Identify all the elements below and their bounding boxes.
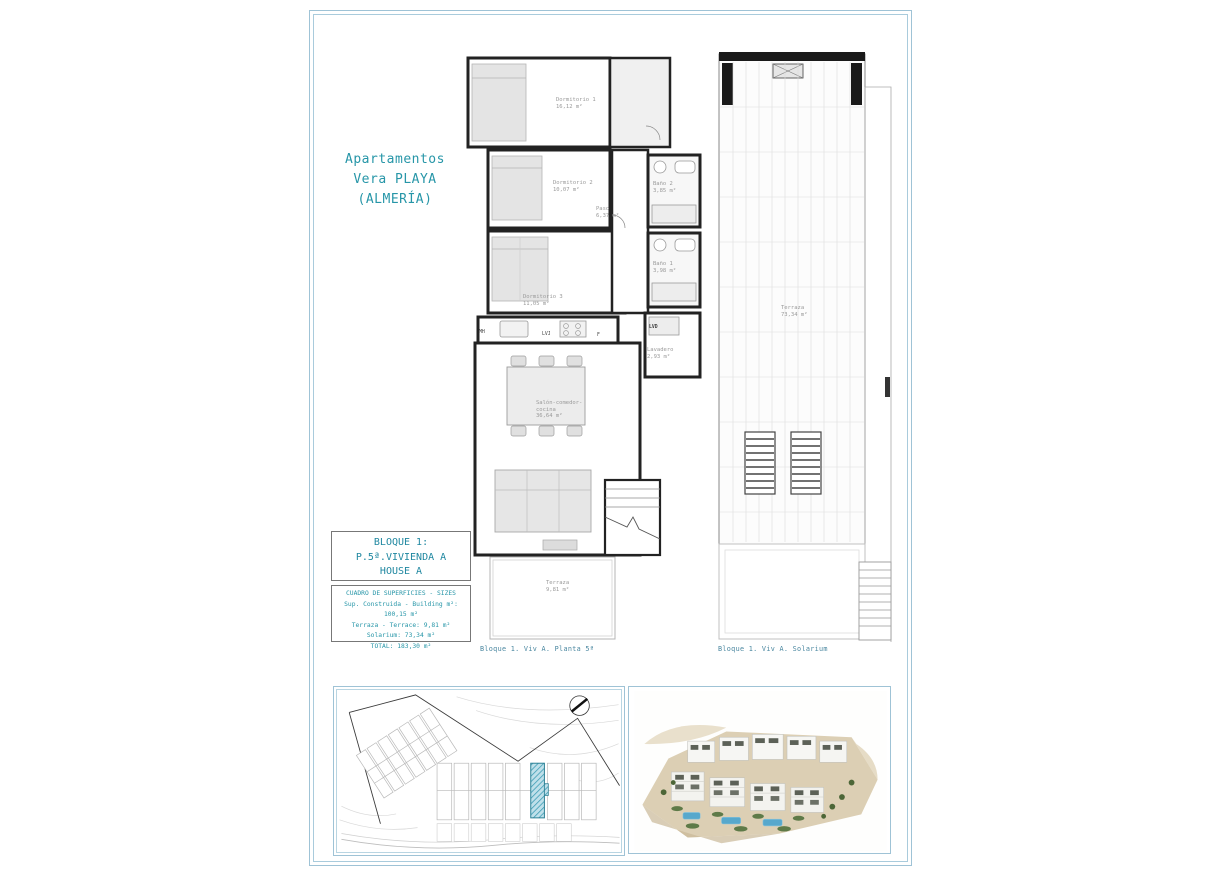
project-title: Apartamentos Vera PLAYA (ALMERÍA) [328,150,462,210]
project-title-line3: (ALMERÍA) [328,190,462,210]
appliance-label-lvd: LVD [649,325,658,330]
sizes-row-building: Sup. Construida - Building m²: 100,15 m² [332,600,470,621]
sizes-row-total: TOTAL: 183,30 m² [332,642,470,653]
side-strip [865,87,891,642]
room-label-salon: Salón-comedor-cocina 36,64 m² [536,400,598,420]
pool-2 [721,817,740,824]
project-title-line2: Vera PLAYA [328,170,462,190]
sizes-table: CUADRO DE SUPERFICIES - SIZES Sup. Const… [331,585,471,642]
solarium-wall-left [722,63,733,105]
room-label-dormitorio1: Dormitorio 1 16,12 m² [556,97,596,110]
bed-1 [472,64,526,141]
caption-solarium: Bloque 1. Viv A. Solarium [718,645,828,653]
block-line1: BLOQUE 1: [332,536,470,551]
room-label-lavadero: Lavadero 2,93 m² [647,347,674,360]
north-arrow-icon [570,696,590,716]
coffee-table [543,540,577,550]
room-label-dormitorio3: Dormitorio 3 11,05 m² [523,294,563,307]
sizes-row-terrace: Terraza - Terrace: 9,81 m² [332,621,470,632]
solarium-drawing [713,42,898,647]
strip-detail [885,377,890,397]
solarium-stairs [859,562,891,640]
pool-1 [683,812,700,819]
chair [511,356,526,366]
shower-2 [652,205,696,223]
sizes-header: CUADRO DE SUPERFICIES - SIZES [332,589,470,600]
pool-3 [763,819,782,826]
chair [539,426,554,436]
site-plan-drawing [338,691,622,853]
room-label-terraza: Terraza 9,81 m² [546,580,569,593]
sink-1 [675,239,695,251]
plan-sheet-page: Apartamentos Vera PLAYA (ALMERÍA) [0,0,1221,877]
block-info-box: BLOQUE 1: P.5ª.VIVIENDA A HOUSE A [331,531,471,581]
terraza-outline [490,557,615,639]
chair [539,356,554,366]
bed-2 [492,156,542,220]
lower-terrace-outline [719,544,865,639]
room-label-solarium-terraza: Terraza 73,34 m² [781,305,808,318]
caption-planta: Bloque 1. Viv A. Planta 5ª [480,645,594,653]
render-drawing [633,691,888,851]
shower-1 [652,283,696,301]
site-plan-panel [333,686,625,856]
appliance-label-mh: MH [479,330,485,335]
solarium-top-wall [719,52,865,61]
planta5-drawing [455,45,710,645]
chair [511,426,526,436]
entry-core [610,58,670,147]
render-panel [628,686,891,854]
plot-row-right [437,763,596,820]
kitchen-sink [500,321,528,337]
sun-lounger-1 [745,432,775,494]
room-label-dormitorio2: Dormitorio 2 10,07 m² [553,180,593,193]
floor-plan-solarium: Terraza 73,34 m² [713,42,898,647]
chair [567,426,582,436]
appliance-label-lvj: LVJ [542,332,551,337]
solarium-wall-right [851,63,862,105]
toilet-2 [654,161,666,173]
room-label-bano2: Baño 2 3,85 m² [653,181,676,194]
sink-2 [675,161,695,173]
room-label-bano1: Baño 1 3,98 m² [653,261,676,274]
toilet-1 [654,239,666,251]
paso-corridor [612,150,648,313]
block-line2: P.5ª.VIVIENDA A [332,551,470,566]
room-label-paso: Paso 6,37 m² [596,206,619,219]
chair [567,356,582,366]
sizes-row-solarium: Solarium: 73,34 m² [332,631,470,642]
highlighted-plot [531,763,545,818]
project-title-line1: Apartamentos [328,150,462,170]
appliance-label-f: F [597,333,600,338]
sofa [495,470,591,532]
sun-lounger-2 [791,432,821,494]
floor-plan-planta5: Dormitorio 1 16,12 m² Dormitorio 2 10,07… [455,45,710,645]
kitchen-counter [478,317,618,343]
block-line3: HOUSE A [332,565,470,580]
